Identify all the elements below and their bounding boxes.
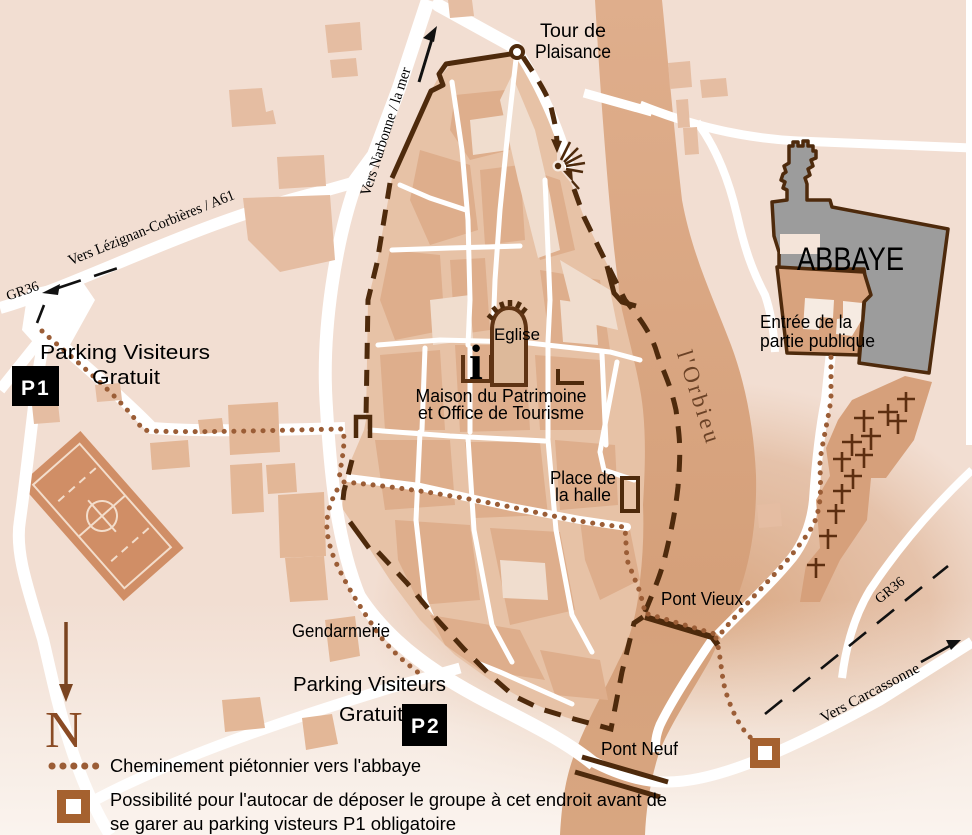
svg-text:Entrée de la: Entrée de la [760,312,853,332]
svg-text:Eglise: Eglise [494,325,540,344]
svg-text:Tour de: Tour de [540,21,606,42]
svg-text:Gratuit: Gratuit [339,704,403,726]
svg-text:la halle: la halle [555,485,611,505]
svg-text:i: i [469,334,483,390]
svg-text:se garer au parking visteurs P: se garer au parking visteurs P1 obligato… [110,814,456,834]
svg-text:Pont Neuf: Pont Neuf [601,739,679,759]
svg-text:P1: P1 [21,377,51,400]
svg-text:ABBAYE: ABBAYE [797,241,904,277]
svg-text:Gratuit: Gratuit [92,367,160,389]
svg-text:P2: P2 [411,715,441,738]
svg-text:Pont Vieux: Pont Vieux [661,589,743,609]
svg-text:N: N [45,702,83,759]
svg-text:Gendarmerie: Gendarmerie [292,621,390,641]
svg-text:Cheminement piétonnier vers l': Cheminement piétonnier vers l'abbaye [110,756,421,776]
svg-text:Possibilité pour l'autocar de: Possibilité pour l'autocar de déposer le… [110,790,667,810]
svg-text:et Office de Tourisme: et Office de Tourisme [418,403,584,423]
svg-text:Parking Visiteurs: Parking Visiteurs [40,342,210,364]
svg-text:Plaisance: Plaisance [535,42,611,63]
svg-text:partie publique: partie publique [760,331,875,351]
svg-text:Parking Visiteurs: Parking Visiteurs [293,674,446,696]
